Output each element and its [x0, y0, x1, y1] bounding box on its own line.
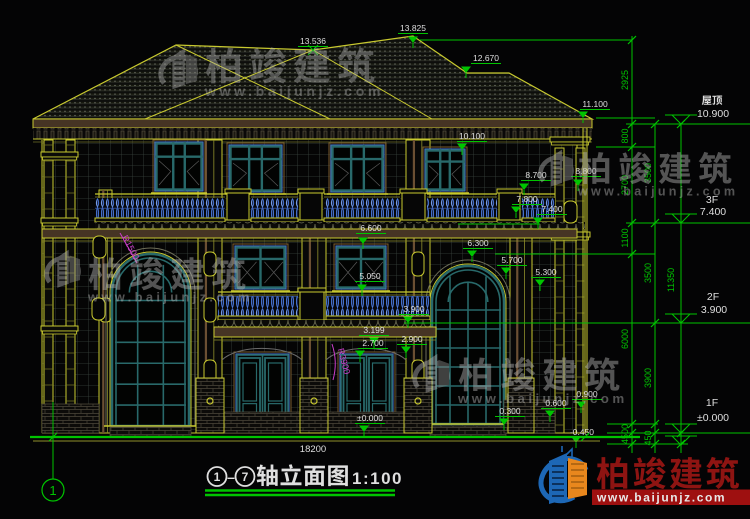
svg-text:0.300: 0.300	[499, 406, 521, 416]
svg-text:6.600: 6.600	[360, 223, 382, 233]
svg-text:www.baijunjz.com: www.baijunjz.com	[457, 391, 628, 406]
svg-text:www.baijunjz.com: www.baijunjz.com	[87, 290, 253, 305]
svg-text:3500: 3500	[643, 263, 653, 283]
svg-text:1: 1	[214, 470, 221, 484]
svg-text:7.400: 7.400	[541, 204, 563, 214]
svg-text:13.825: 13.825	[400, 23, 426, 33]
svg-text:11350: 11350	[666, 268, 676, 292]
svg-text:www.baijunjz.com: www.baijunjz.com	[577, 184, 738, 198]
svg-text:450: 450	[643, 430, 653, 445]
svg-text:7.400: 7.400	[700, 206, 726, 218]
svg-text:3.900: 3.900	[403, 304, 425, 314]
svg-text:2.900: 2.900	[401, 334, 423, 344]
svg-text:5.700: 5.700	[501, 255, 523, 265]
svg-text:1100: 1100	[620, 228, 630, 247]
svg-text:2925: 2925	[620, 70, 630, 90]
svg-text:–: –	[227, 469, 235, 485]
svg-text:2F: 2F	[707, 291, 719, 303]
svg-text:1F: 1F	[706, 397, 718, 409]
svg-text:1: 1	[49, 483, 56, 498]
svg-text:10.900: 10.900	[697, 108, 729, 120]
svg-text:5.050: 5.050	[359, 271, 381, 281]
svg-text:12.670: 12.670	[473, 53, 499, 63]
svg-text:3900: 3900	[643, 368, 653, 388]
svg-text:7: 7	[242, 470, 249, 484]
svg-text:7.800: 7.800	[516, 194, 538, 204]
svg-text:6000: 6000	[620, 329, 630, 349]
svg-text:-0.450: -0.450	[570, 427, 594, 437]
svg-text:10.100: 10.100	[459, 131, 485, 141]
svg-text:18200: 18200	[300, 444, 326, 455]
svg-text:www.baijunjz.com: www.baijunjz.com	[204, 83, 384, 99]
svg-text:4500: 4500	[620, 424, 630, 444]
svg-text:www.baijunjz.com: www.baijunjz.com	[596, 491, 726, 505]
svg-text:±0.000: ±0.000	[697, 412, 729, 424]
svg-text:6.300: 6.300	[467, 238, 489, 248]
svg-text:3.199: 3.199	[363, 325, 385, 335]
svg-text:1:100: 1:100	[352, 469, 403, 488]
svg-text:±0.000: ±0.000	[357, 413, 383, 423]
svg-text:5.300: 5.300	[535, 267, 557, 277]
svg-text:11.100: 11.100	[582, 99, 608, 109]
svg-text:13.536: 13.536	[300, 36, 326, 46]
svg-text:2.700: 2.700	[362, 338, 384, 348]
svg-text:800: 800	[620, 128, 630, 143]
svg-text:3.900: 3.900	[701, 304, 727, 316]
